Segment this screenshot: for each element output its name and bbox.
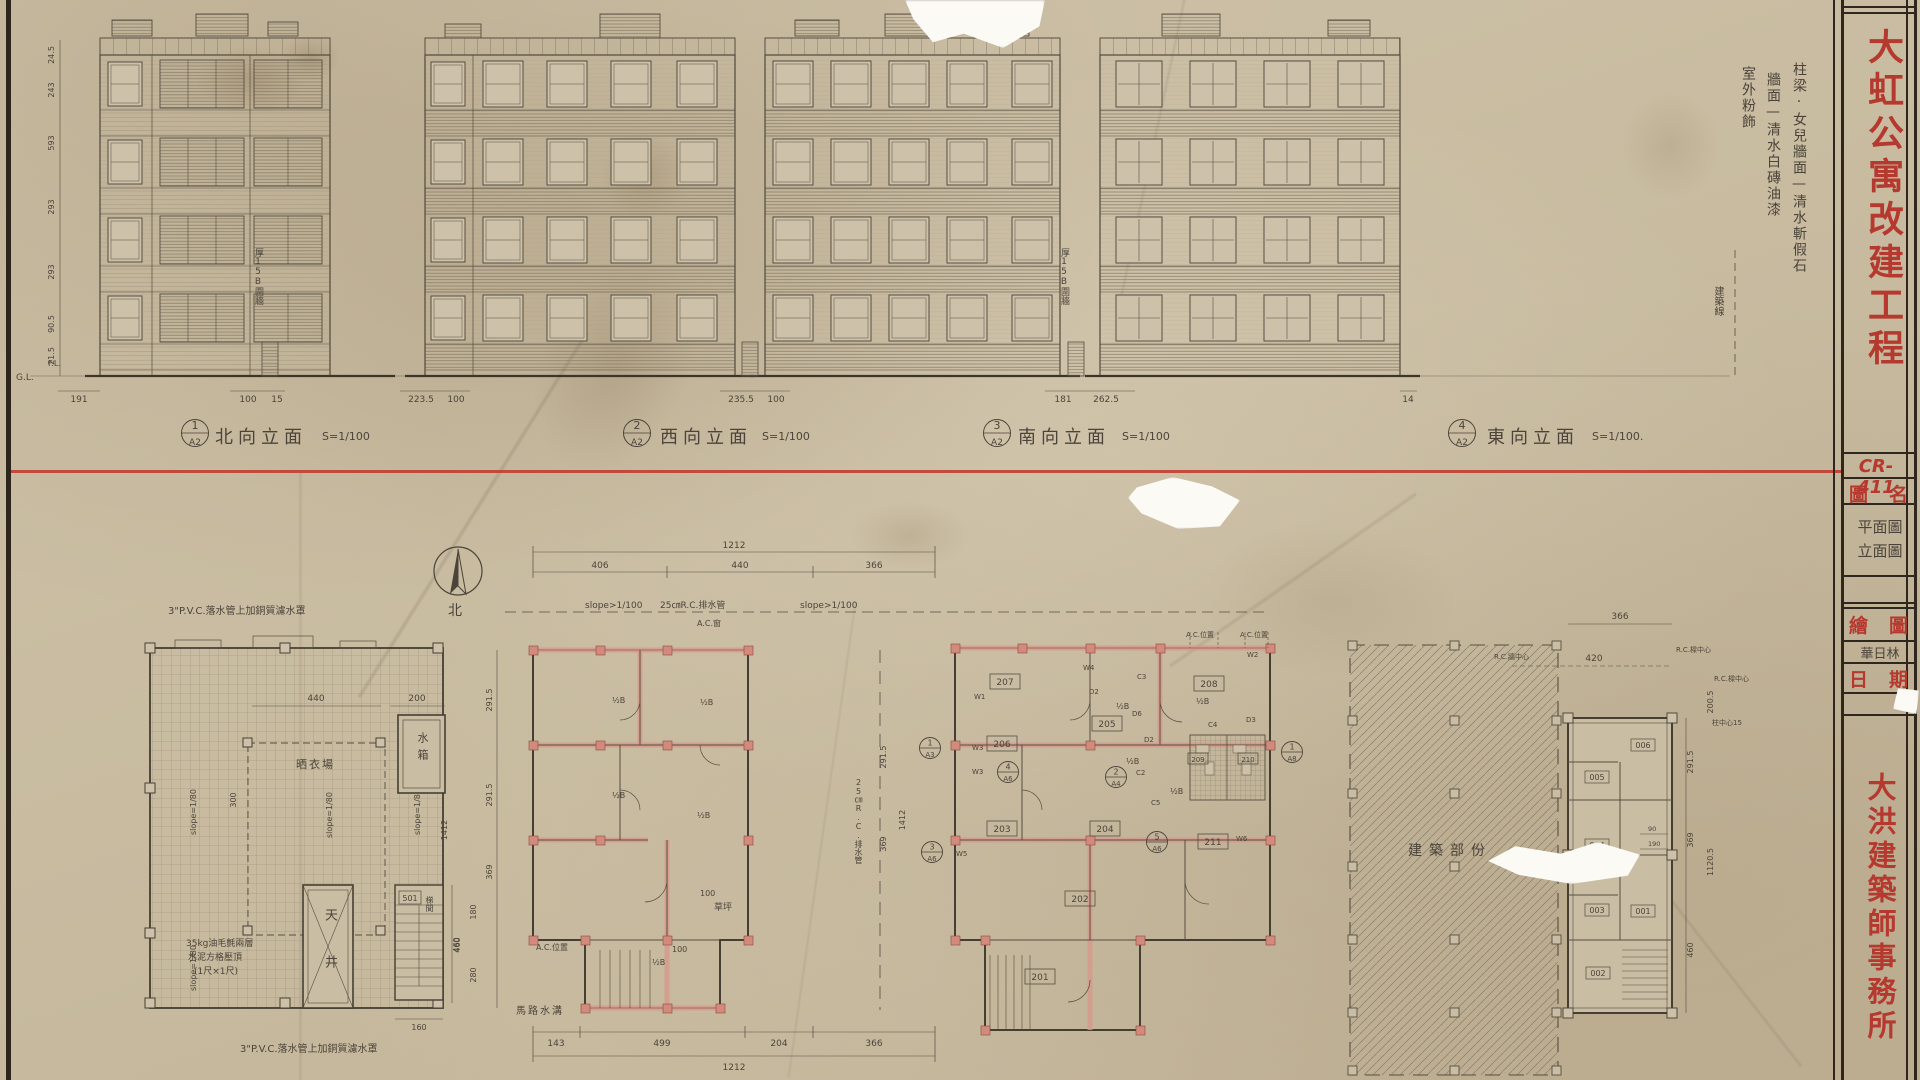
ground-floor-plan-drawing: 201 202 203 204 205 206 207 208 209 210 … bbox=[920, 632, 1303, 1035]
svg-text:369: 369 bbox=[879, 836, 888, 851]
svg-text:A2: A2 bbox=[991, 438, 1003, 448]
svg-text:208: 208 bbox=[1200, 680, 1217, 690]
svg-text:slope=1/80: slope=1/80 bbox=[325, 792, 334, 838]
svg-text:210: 210 bbox=[1241, 756, 1254, 764]
svg-text:366: 366 bbox=[1611, 612, 1628, 622]
svg-text:201: 201 bbox=[1031, 973, 1048, 983]
project-title: 大虹公寓改建工程 bbox=[1856, 28, 1908, 372]
svg-text:005: 005 bbox=[1589, 773, 1604, 782]
svg-text:A6: A6 bbox=[927, 855, 937, 863]
svg-text:½B: ½B bbox=[697, 811, 710, 820]
svg-text:181: 181 bbox=[1054, 395, 1071, 405]
firm-name: 大洪建築師事務所 bbox=[1859, 772, 1901, 1044]
roof-stair-label: 梯間 bbox=[424, 896, 435, 912]
left-dimension-stack: 24.5 243 593 293 293 90.5 21.5 G.L. F.L. bbox=[16, 40, 61, 383]
svg-text:200.5: 200.5 bbox=[1706, 691, 1715, 714]
svg-text:1120.5: 1120.5 bbox=[1706, 848, 1715, 876]
rc-beam-center-label: R.C.樑中心 bbox=[1676, 645, 1711, 655]
scale-label: S=1/100 bbox=[1122, 430, 1170, 443]
fence-wall-label: 厚15B圍牆 bbox=[252, 248, 265, 305]
drawn-by-signature: 華日林 bbox=[1850, 643, 1910, 662]
field-drawing-name: 圖名 bbox=[1849, 480, 1920, 507]
svg-text:100: 100 bbox=[767, 395, 784, 405]
svg-text:440: 440 bbox=[307, 694, 324, 704]
scale-label: S=1/100 bbox=[322, 430, 370, 443]
svg-text:006: 006 bbox=[1635, 741, 1650, 750]
svg-text:2: 2 bbox=[634, 419, 641, 432]
svg-text:100: 100 bbox=[672, 945, 687, 954]
svg-text:4: 4 bbox=[1005, 763, 1010, 772]
svg-text:190: 190 bbox=[1648, 840, 1660, 848]
elevation-south-drawing bbox=[750, 14, 1080, 376]
svg-text:100: 100 bbox=[239, 395, 256, 405]
ground-level-label: G.L. bbox=[16, 373, 34, 383]
svg-text:191: 191 bbox=[70, 395, 87, 405]
drain-pipe-note: 25㎝R.C.排水管 bbox=[660, 598, 725, 611]
svg-text:499: 499 bbox=[653, 1039, 670, 1049]
svg-text:1: 1 bbox=[192, 419, 199, 432]
svg-text:A4: A4 bbox=[1111, 780, 1121, 788]
svg-text:366: 366 bbox=[865, 561, 882, 571]
roof-tank-label: 水箱 bbox=[414, 732, 430, 766]
svg-text:001: 001 bbox=[1635, 907, 1650, 916]
elevation-west-drawing bbox=[405, 14, 755, 376]
slope-note: slope>1/100 bbox=[585, 601, 643, 611]
svg-text:W3: W3 bbox=[972, 744, 983, 752]
svg-text:A8: A8 bbox=[1287, 755, 1296, 763]
svg-text:291.5: 291.5 bbox=[1686, 751, 1695, 774]
svg-text:100: 100 bbox=[447, 395, 464, 405]
svg-text:14: 14 bbox=[1402, 395, 1414, 405]
svg-text:223.5: 223.5 bbox=[408, 395, 434, 405]
scale-label: S=1/100 bbox=[762, 430, 810, 443]
svg-text:15: 15 bbox=[271, 395, 282, 405]
svg-text:D2: D2 bbox=[1144, 736, 1154, 744]
roof-membrane-note-2: 水泥方格壓頂 bbox=[188, 950, 242, 963]
svg-text:243: 243 bbox=[47, 82, 56, 97]
ac-position-label: A.C.位置 bbox=[1186, 630, 1214, 640]
svg-text:3: 3 bbox=[994, 419, 1001, 432]
column-center-label: 柱中心15 bbox=[1712, 718, 1742, 728]
elevation-east-drawing bbox=[1085, 14, 1420, 376]
lawn-label: 草坪 bbox=[714, 900, 732, 913]
elevation-labels: 1 A2 S=1/100 2 A2 S=1/100 3 A2 S=1/100 bbox=[182, 419, 1644, 448]
svg-text:366: 366 bbox=[865, 1039, 882, 1049]
svg-text:A2: A2 bbox=[189, 438, 201, 448]
svg-text:460: 460 bbox=[453, 937, 462, 952]
svg-text:209: 209 bbox=[1191, 756, 1204, 764]
svg-text:4: 4 bbox=[1459, 419, 1466, 432]
drawing-name-line2: 立面圖 bbox=[1850, 540, 1910, 561]
field-date: 日期 bbox=[1849, 665, 1920, 692]
svg-text:293: 293 bbox=[47, 199, 56, 214]
floor-level-label: F.L. bbox=[48, 359, 61, 368]
svg-text:262.5: 262.5 bbox=[1093, 395, 1119, 405]
svg-text:½B: ½B bbox=[1196, 697, 1209, 706]
svg-text:291.5: 291.5 bbox=[485, 784, 494, 807]
ac-position-label: A.C.位置 bbox=[1240, 630, 1268, 640]
svg-text:207: 207 bbox=[996, 678, 1013, 688]
svg-text:204: 204 bbox=[1096, 825, 1113, 835]
svg-text:003: 003 bbox=[1589, 906, 1604, 915]
road-gutter-label: 馬路水溝 bbox=[516, 1002, 564, 1017]
svg-text:211: 211 bbox=[1204, 838, 1221, 848]
svg-text:C3: C3 bbox=[1137, 673, 1146, 681]
svg-text:369: 369 bbox=[1686, 832, 1695, 847]
scale-label: S=1/100. bbox=[1592, 430, 1643, 443]
svg-text:90: 90 bbox=[1648, 825, 1656, 833]
svg-text:A6: A6 bbox=[1003, 775, 1013, 783]
slope-note: slope>1/100 bbox=[800, 601, 858, 611]
svg-text:204: 204 bbox=[770, 1039, 787, 1049]
svg-text:143: 143 bbox=[547, 1039, 564, 1049]
stair-room-number: 501 bbox=[402, 894, 417, 903]
ac-window-label: A.C.窗 bbox=[697, 618, 721, 629]
svg-text:205: 205 bbox=[1098, 720, 1115, 730]
svg-text:½B: ½B bbox=[612, 791, 625, 800]
elev-title-south: 南向立面 bbox=[1018, 423, 1110, 449]
svg-text:slope=1/80: slope=1/80 bbox=[189, 789, 198, 835]
svg-text:W6: W6 bbox=[1236, 835, 1248, 843]
drawing-name-line1: 平面圖 bbox=[1850, 516, 1910, 537]
svg-text:369: 369 bbox=[485, 864, 494, 879]
svg-text:100: 100 bbox=[700, 889, 715, 898]
svg-text:291.5: 291.5 bbox=[879, 746, 888, 769]
roof-lightwell-label: 天井 bbox=[320, 908, 339, 1002]
svg-text:A3: A3 bbox=[925, 751, 934, 759]
rc-beam-center-label: R.C.樑中心 bbox=[1714, 674, 1749, 684]
svg-text:593: 593 bbox=[47, 135, 56, 150]
drawing-linework: 24.5 243 593 293 293 90.5 21.5 G.L. F.L.… bbox=[0, 0, 1920, 1080]
svg-text:1: 1 bbox=[927, 739, 932, 748]
north-arrow bbox=[434, 547, 482, 595]
svg-text:460: 460 bbox=[1686, 942, 1695, 957]
finish-note-3: 室外粉飾 bbox=[1738, 66, 1758, 186]
svg-text:A2: A2 bbox=[1456, 438, 1468, 448]
svg-text:W3: W3 bbox=[972, 768, 983, 776]
svg-text:1412: 1412 bbox=[898, 810, 907, 830]
svg-text:235.5: 235.5 bbox=[728, 395, 754, 405]
svg-text:1: 1 bbox=[1289, 743, 1294, 752]
gap-dimensions: 291.5 369 1412 bbox=[879, 650, 907, 1010]
roof-membrane-note-3: (1尺×1尺) bbox=[194, 964, 238, 977]
svg-text:293: 293 bbox=[47, 264, 56, 279]
svg-text:D2: D2 bbox=[1089, 688, 1099, 696]
rc-wall-center-label: R.C.牆中心 bbox=[1494, 652, 1529, 662]
svg-text:W4: W4 bbox=[1083, 664, 1095, 672]
svg-text:C4: C4 bbox=[1208, 721, 1218, 729]
svg-text:3: 3 bbox=[929, 843, 934, 852]
svg-text:90.5: 90.5 bbox=[47, 315, 56, 333]
ground-dimensions: 191 100 15 223.5 100 235.5 100 181 262.5… bbox=[58, 391, 1417, 405]
svg-text:1212: 1212 bbox=[723, 541, 746, 551]
roof-pvc-note-top: 3"P.V.C.落水管上加銅質濾水罩 bbox=[168, 602, 306, 617]
gap-drain-note: 25㎝R.C.排水管 bbox=[853, 778, 864, 864]
north-label: 北 bbox=[448, 600, 462, 620]
finish-note-1: 柱梁·女兒牆面—清水斬假石 bbox=[1789, 62, 1809, 362]
svg-text:C5: C5 bbox=[1151, 799, 1160, 807]
svg-text:W5: W5 bbox=[956, 850, 967, 858]
svg-text:420: 420 bbox=[1585, 654, 1602, 664]
svg-text:180: 180 bbox=[469, 904, 478, 919]
fence-wall-label: 厚15B圍牆 bbox=[1058, 248, 1071, 305]
svg-text:slope=1/80: slope=1/80 bbox=[413, 789, 422, 835]
svg-text:5: 5 bbox=[1154, 833, 1159, 842]
svg-text:280: 280 bbox=[469, 967, 478, 982]
svg-text:½B: ½B bbox=[1126, 757, 1139, 766]
elev-title-west: 西向立面 bbox=[660, 423, 752, 449]
svg-text:½B: ½B bbox=[1170, 787, 1183, 796]
svg-text:W2: W2 bbox=[1247, 651, 1258, 659]
svg-text:291.5: 291.5 bbox=[485, 689, 494, 712]
svg-text:2: 2 bbox=[1113, 768, 1118, 777]
finish-note-2: 牆面—清水白磚油漆 bbox=[1763, 72, 1783, 352]
svg-text:300: 300 bbox=[229, 792, 238, 807]
svg-text:A6: A6 bbox=[1152, 845, 1162, 853]
svg-text:C2: C2 bbox=[1136, 769, 1145, 777]
site-area-label: 建築部份 bbox=[1408, 840, 1492, 860]
svg-text:1412: 1412 bbox=[440, 820, 449, 840]
elev-title-east: 東向立面 bbox=[1487, 423, 1579, 449]
svg-text:D3: D3 bbox=[1246, 716, 1256, 724]
svg-text:½B: ½B bbox=[700, 698, 713, 707]
svg-text:W1: W1 bbox=[974, 693, 985, 701]
blueprint-sheet: 24.5 243 593 293 293 90.5 21.5 G.L. F.L.… bbox=[0, 0, 1920, 1080]
site-plan-drawing: 006 005 004 003 001 002 291.5 369 460 11… bbox=[1348, 612, 1715, 1075]
field-drawn-by: 繪圖 bbox=[1849, 611, 1920, 638]
svg-text:002: 002 bbox=[1590, 969, 1605, 978]
svg-text:½B: ½B bbox=[612, 696, 625, 705]
svg-text:24.5: 24.5 bbox=[47, 46, 56, 64]
svg-text:½B: ½B bbox=[652, 958, 665, 967]
svg-text:206: 206 bbox=[993, 740, 1010, 750]
svg-text:A2: A2 bbox=[631, 438, 643, 448]
svg-text:202: 202 bbox=[1071, 895, 1088, 905]
ac-position-label: A.C.位置 bbox=[536, 942, 568, 953]
svg-text:200: 200 bbox=[408, 694, 425, 704]
building-line-label: 建築線 bbox=[1710, 286, 1725, 316]
roof-drying-label: 晒衣場 bbox=[296, 756, 335, 772]
elevation-north-drawing bbox=[85, 14, 395, 376]
svg-text:160: 160 bbox=[411, 1023, 426, 1032]
roof-plan-drawing: 440 300 200 slope=1/80 slope=1/80 slope=… bbox=[145, 636, 461, 1032]
roof-membrane-note-1: 35kg油毛氈兩層 bbox=[186, 936, 253, 949]
elev-title-north: 北向立面 bbox=[215, 423, 307, 449]
svg-text:D6: D6 bbox=[1132, 710, 1142, 718]
svg-text:203: 203 bbox=[993, 825, 1010, 835]
roof-pvc-note-bottom: 3"P.V.C.落水管上加銅質濾水罩 bbox=[240, 1040, 378, 1055]
svg-text:½B: ½B bbox=[1116, 702, 1129, 711]
svg-text:1212: 1212 bbox=[723, 1063, 746, 1073]
svg-text:440: 440 bbox=[731, 561, 748, 571]
svg-text:406: 406 bbox=[591, 561, 608, 571]
